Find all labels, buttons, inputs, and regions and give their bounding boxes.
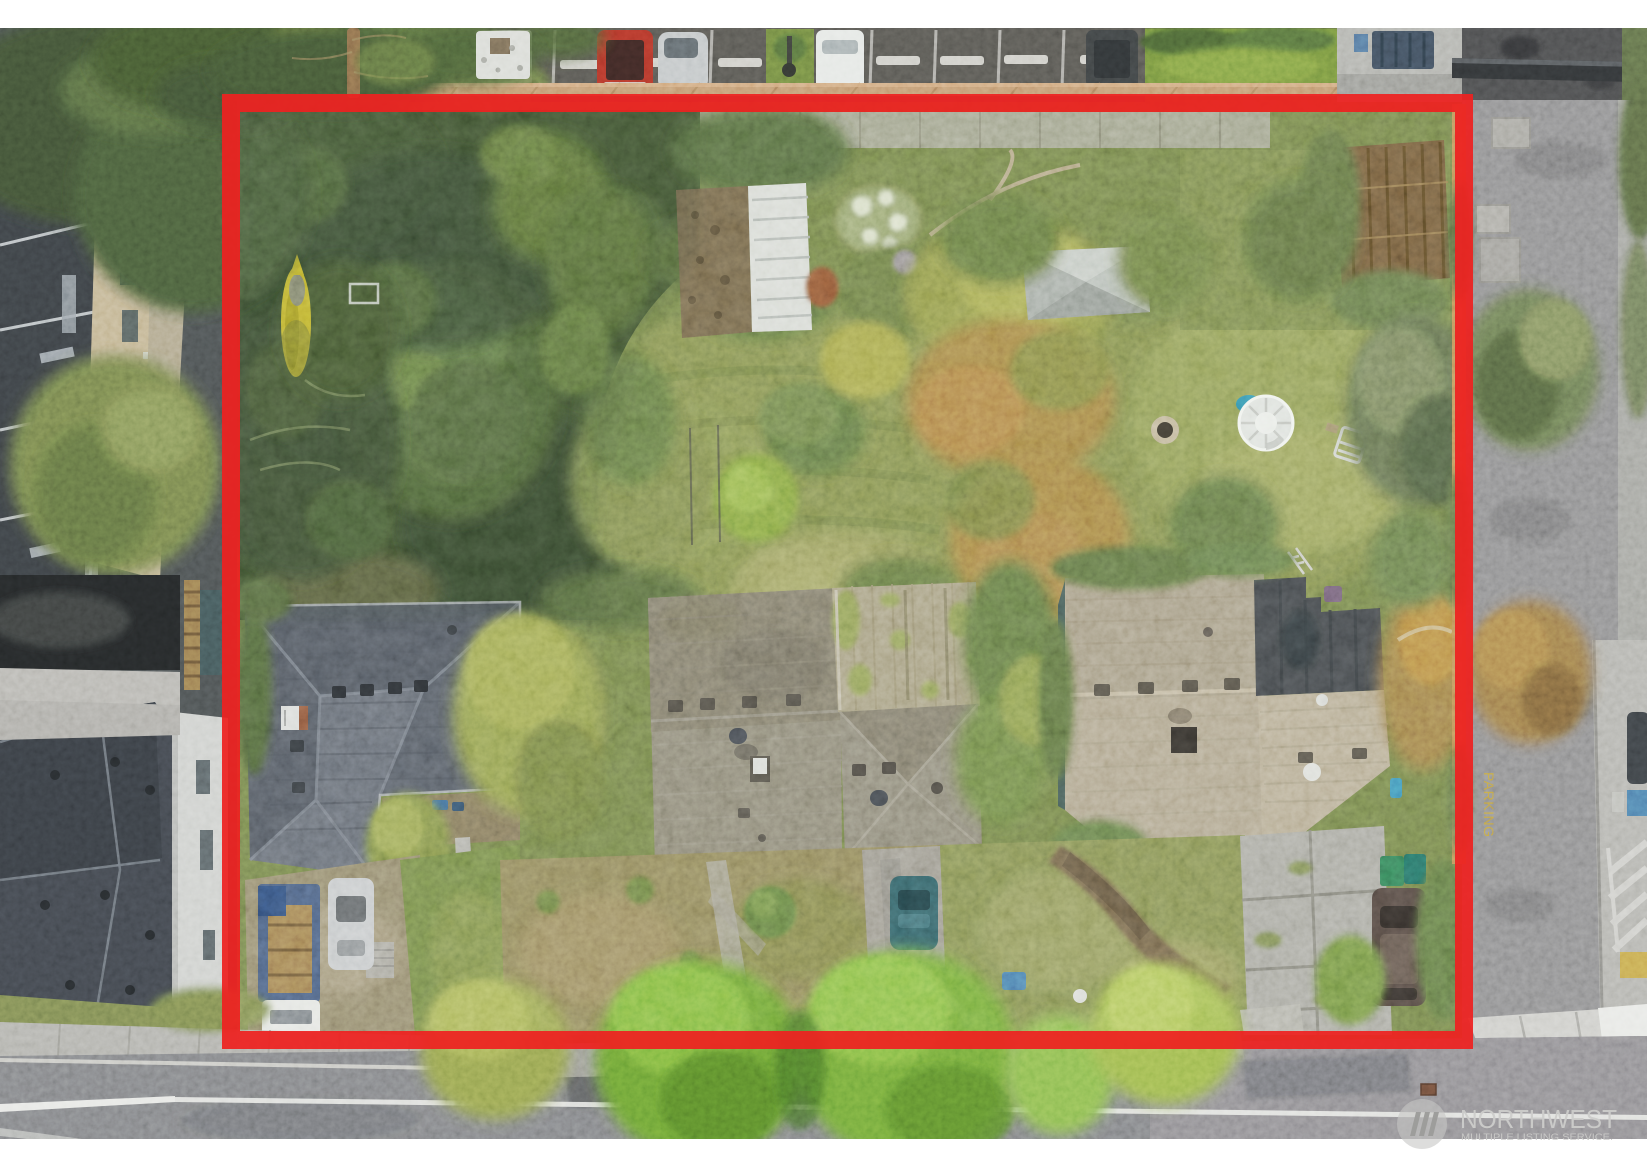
svg-text:NORTHWEST: NORTHWEST xyxy=(1460,1104,1617,1134)
svg-text:MULTIPLE LISTING SERVICE.: MULTIPLE LISTING SERVICE. xyxy=(1461,1132,1613,1142)
